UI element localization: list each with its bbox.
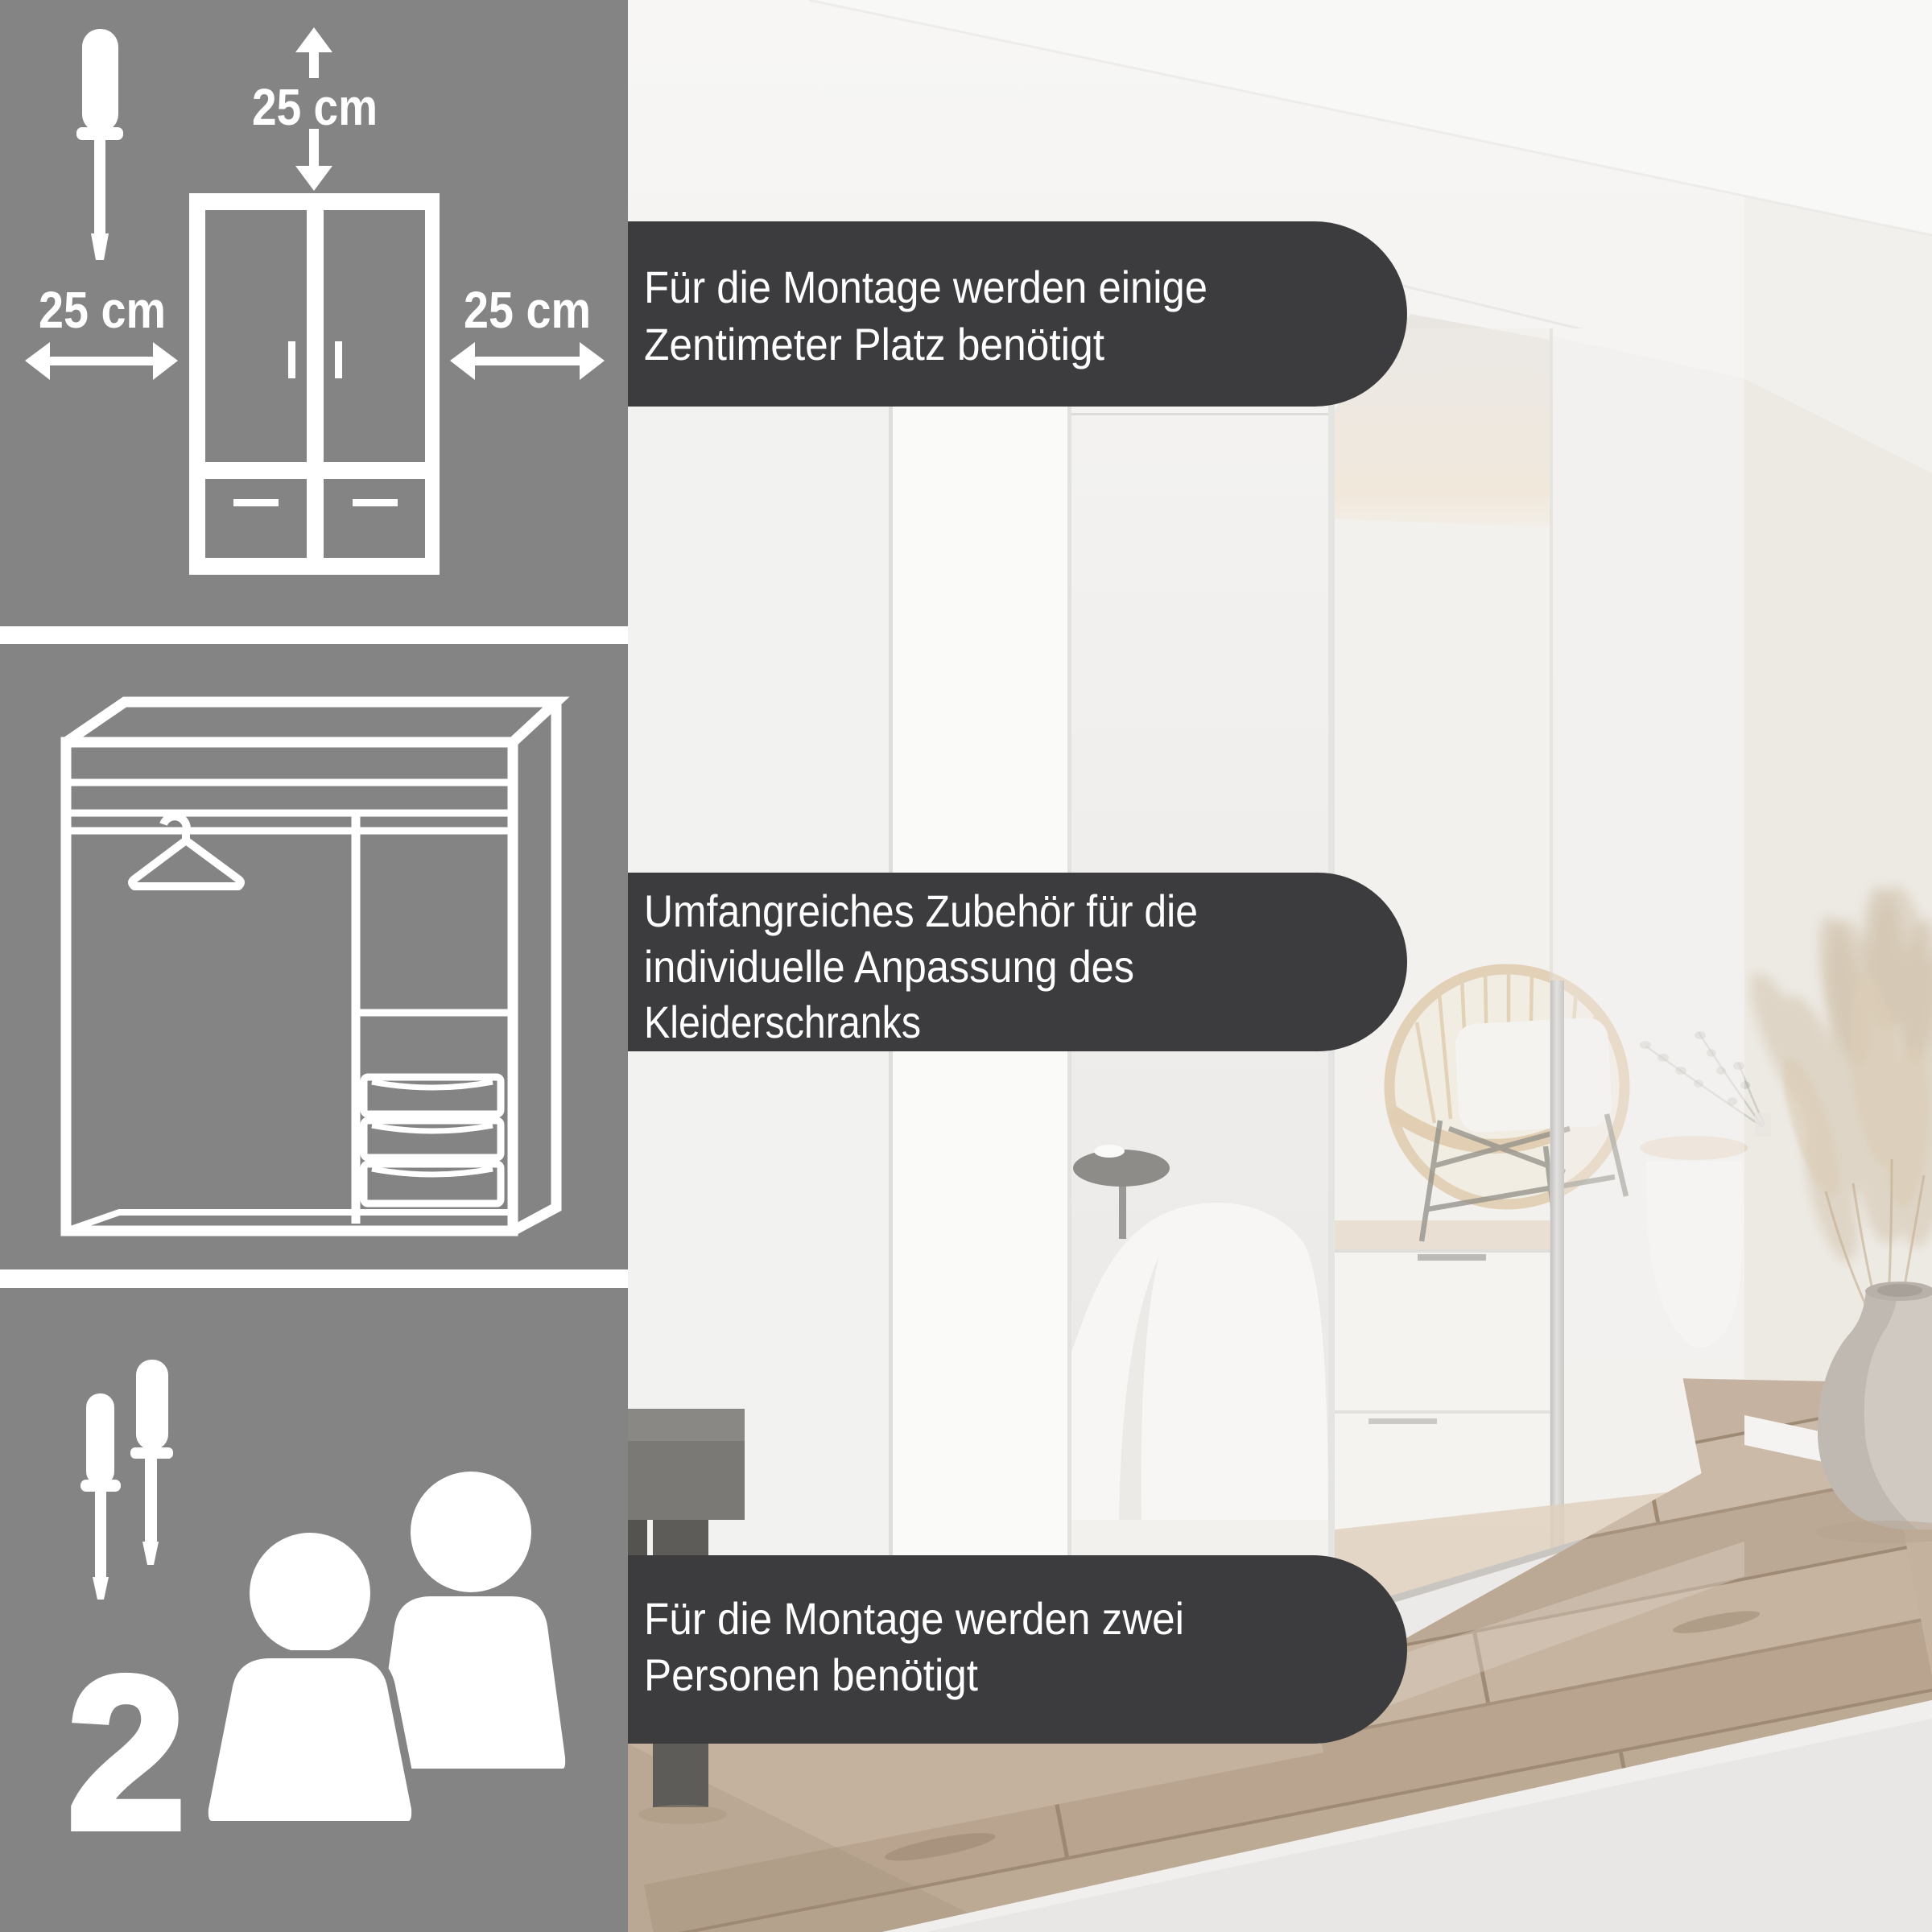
svg-text:Für die Montage werden zwei: Für die Montage werden zwei — [644, 1593, 1184, 1644]
svg-text:individuelle Anpassung des: individuelle Anpassung des — [644, 941, 1134, 992]
svg-text:25 cm: 25 cm — [464, 281, 591, 339]
svg-text:25 cm: 25 cm — [252, 78, 378, 136]
svg-text:25 cm: 25 cm — [39, 281, 166, 339]
svg-text:Umfangreiches Zubehör für die: Umfangreiches Zubehör für die — [644, 885, 1198, 936]
svg-text:Zentimeter Platz benötigt: Zentimeter Platz benötigt — [644, 319, 1104, 369]
svg-text:Personen benötigt: Personen benötigt — [644, 1649, 978, 1700]
svg-text:2: 2 — [68, 1633, 185, 1874]
svg-text:Für die Montage werden einige: Für die Montage werden einige — [644, 262, 1207, 312]
svg-text:Kleiderschranks: Kleiderschranks — [644, 997, 921, 1047]
